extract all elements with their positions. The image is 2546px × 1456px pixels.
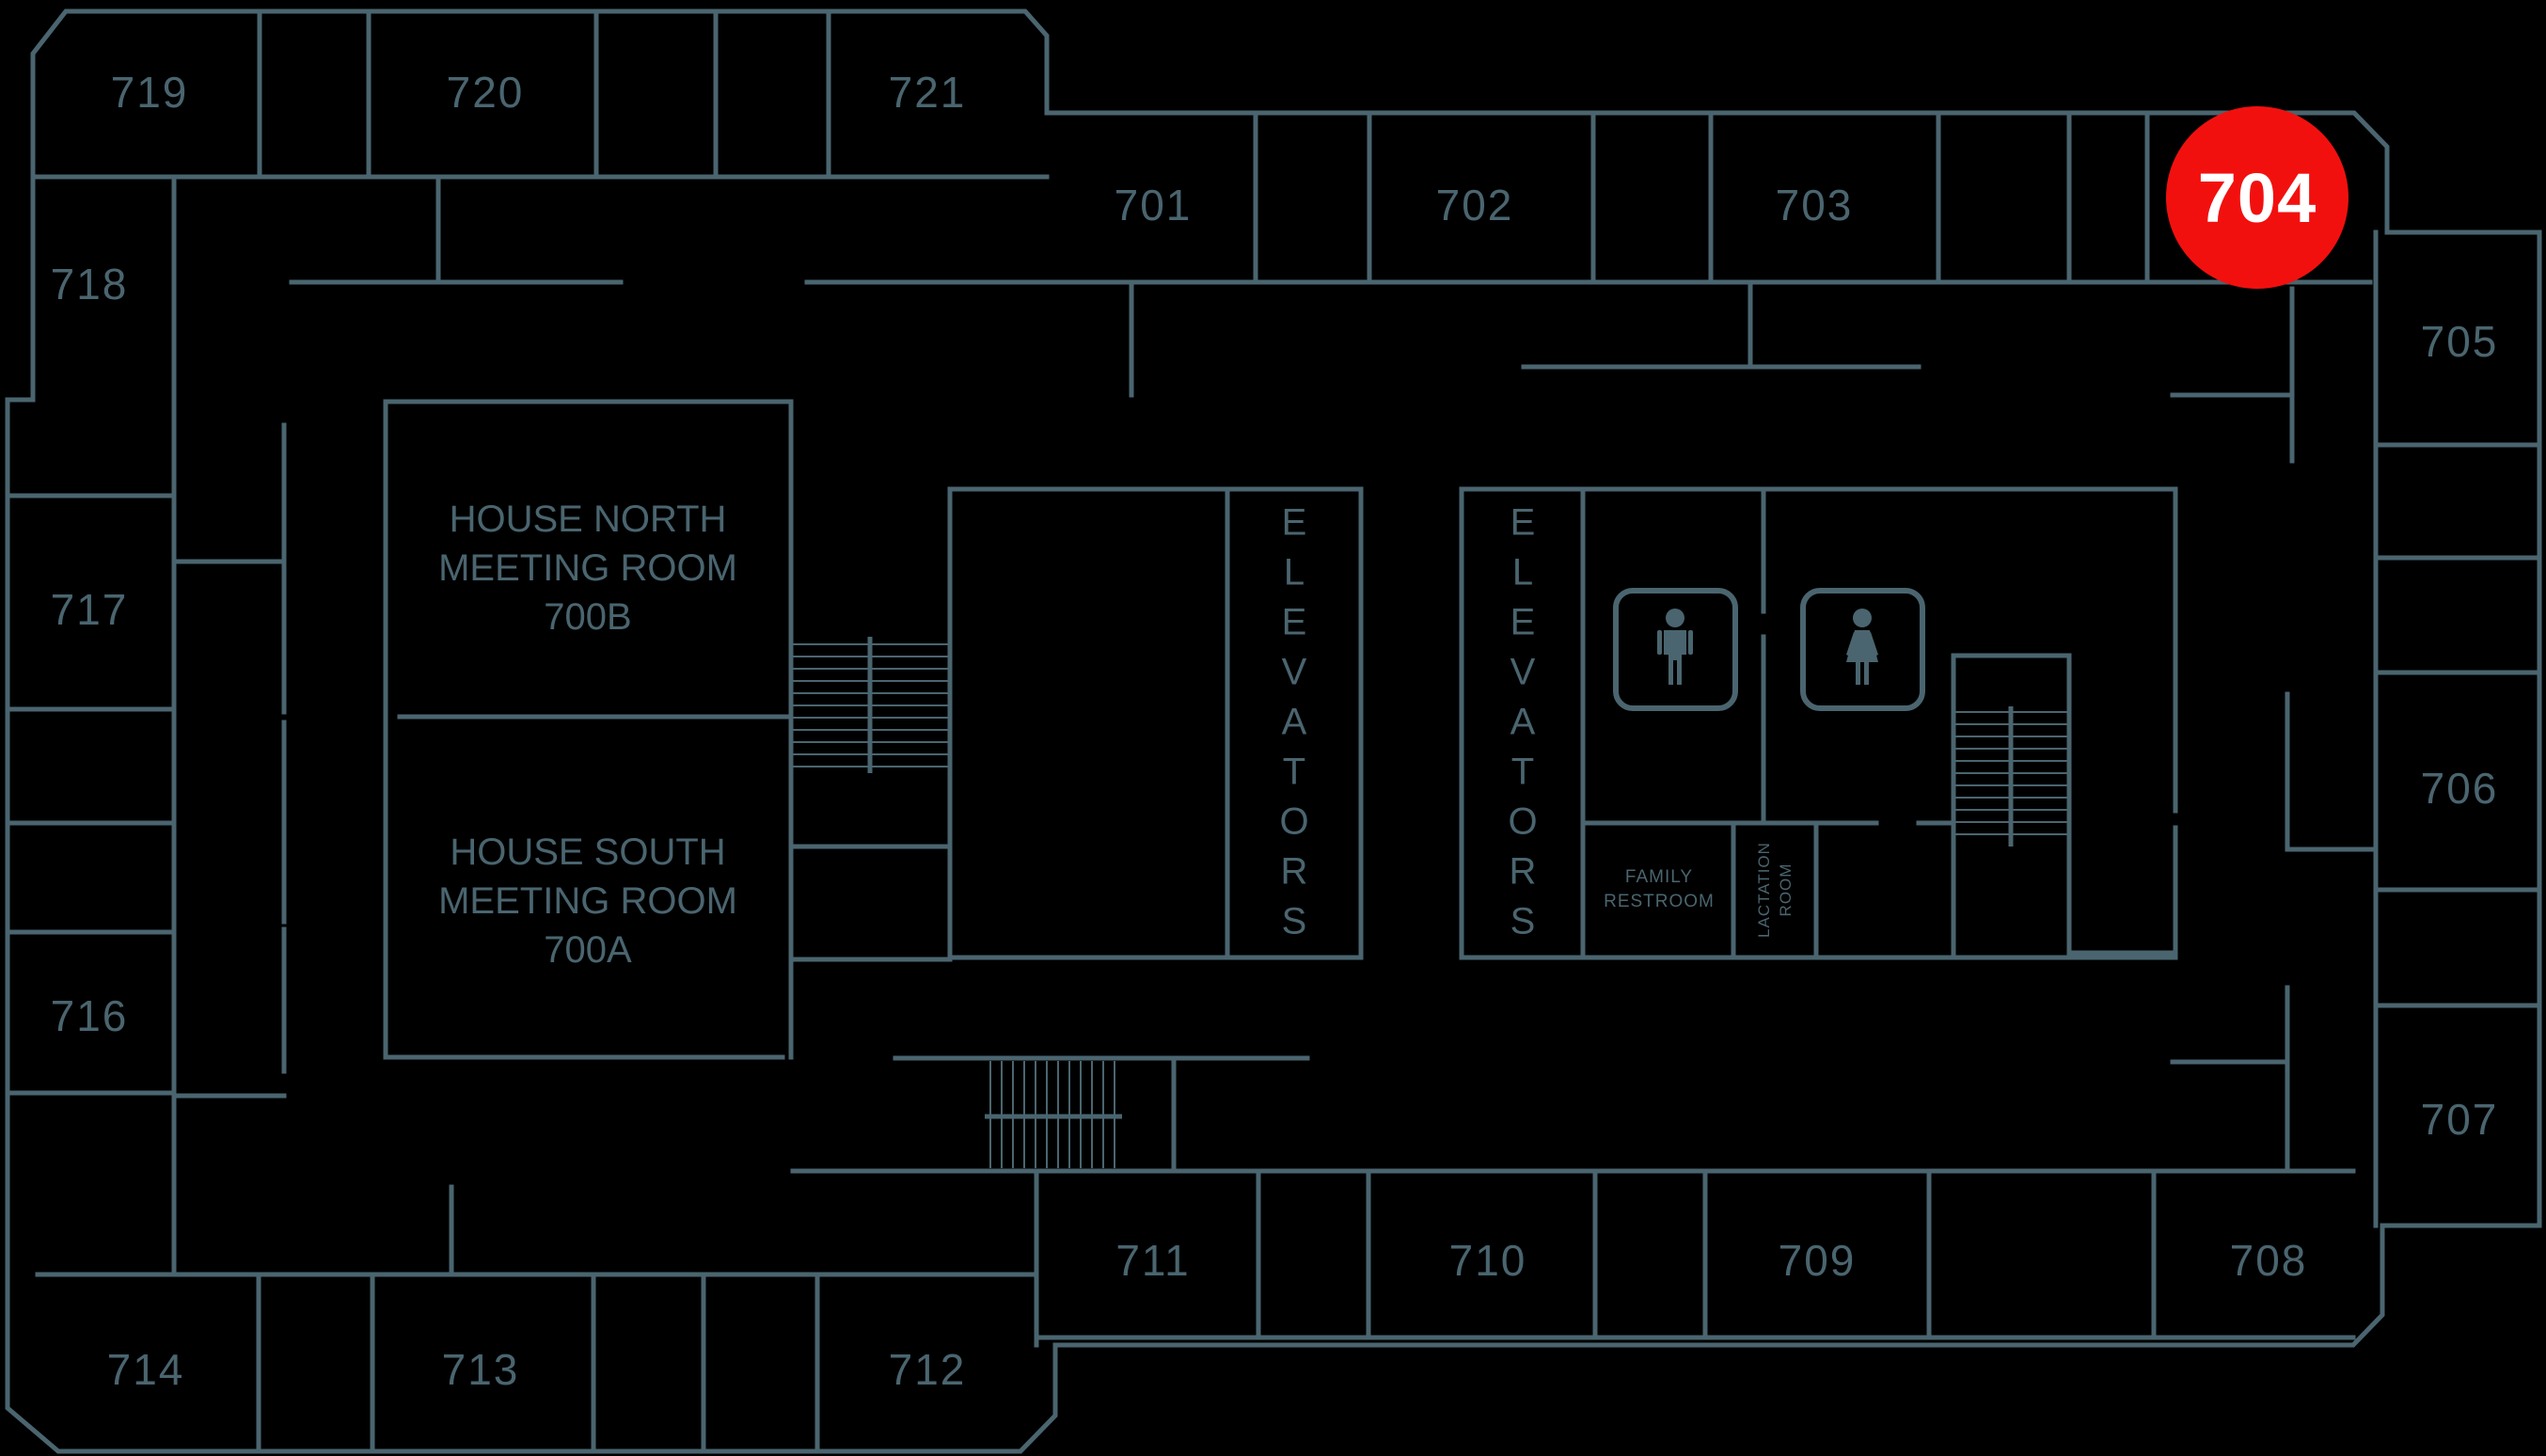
- meeting-room-700a-line2: MEETING ROOM: [438, 877, 737, 926]
- room-label-712: 712: [889, 1348, 967, 1391]
- room-label-703: 703: [1776, 183, 1854, 227]
- room-label-713: 713: [442, 1348, 520, 1391]
- room-label-702: 702: [1436, 183, 1514, 227]
- elevators-west-label: ELEVATORS: [1275, 502, 1313, 951]
- male-restroom-sign: [1616, 591, 1735, 708]
- lactation-room-label: LACTATION ROOM: [1753, 842, 1796, 938]
- family-restroom-label: FAMILY RESTROOM: [1604, 865, 1715, 914]
- room-label-706: 706: [2421, 767, 2499, 810]
- female-restroom-sign: [1803, 591, 1922, 708]
- core-east-walls: [1462, 489, 2175, 957]
- room-704-highlight-badge: 704: [2166, 106, 2348, 289]
- lactation-room-line1: LACTATION: [1753, 842, 1775, 938]
- meeting-room-700b-line2: MEETING ROOM: [438, 544, 737, 593]
- meeting-room-700b-line1: HOUSE NORTH: [438, 495, 737, 544]
- room-label-717: 717: [51, 588, 129, 631]
- room-label-716: 716: [51, 994, 129, 1037]
- elevators-east-label: ELEVATORS: [1504, 502, 1542, 951]
- lactation-room-line2: ROOM: [1775, 842, 1796, 938]
- meeting-room-700a-line3: 700A: [438, 926, 737, 974]
- meeting-room-700a-line1: HOUSE SOUTH: [438, 828, 737, 877]
- female-restroom-icon: [1846, 609, 1878, 685]
- room-label-711: 711: [1115, 1239, 1190, 1282]
- room-label-710: 710: [1449, 1239, 1527, 1282]
- floor-plan-page: { "colors": { "background": "#000000", "…: [0, 0, 2546, 1456]
- meeting-room-700b-label: HOUSE NORTH MEETING ROOM 700B: [438, 495, 737, 641]
- left-wing-walls: [8, 11, 1047, 1451]
- family-restroom-line1: FAMILY: [1604, 865, 1715, 890]
- right-column-walls: [2173, 232, 2539, 1226]
- room-label-709: 709: [1779, 1239, 1857, 1282]
- room-label-707: 707: [2421, 1098, 2499, 1141]
- room-label-718: 718: [51, 262, 129, 306]
- room-label-721: 721: [889, 71, 967, 114]
- meeting-room-700b-line3: 700B: [438, 593, 737, 641]
- bottom-row-walls: [793, 1058, 2353, 1337]
- room-label-701: 701: [1115, 183, 1193, 227]
- room-label-708: 708: [2230, 1239, 2308, 1282]
- family-restroom-line2: RESTROOM: [1604, 890, 1715, 914]
- meeting-room-700a-label: HOUSE SOUTH MEETING ROOM 700A: [438, 828, 737, 974]
- room-label-720: 720: [447, 71, 525, 114]
- male-restroom-icon: [1657, 609, 1693, 685]
- room-label-705: 705: [2421, 320, 2499, 363]
- room-label-719: 719: [111, 71, 189, 114]
- room-label-714: 714: [107, 1348, 185, 1391]
